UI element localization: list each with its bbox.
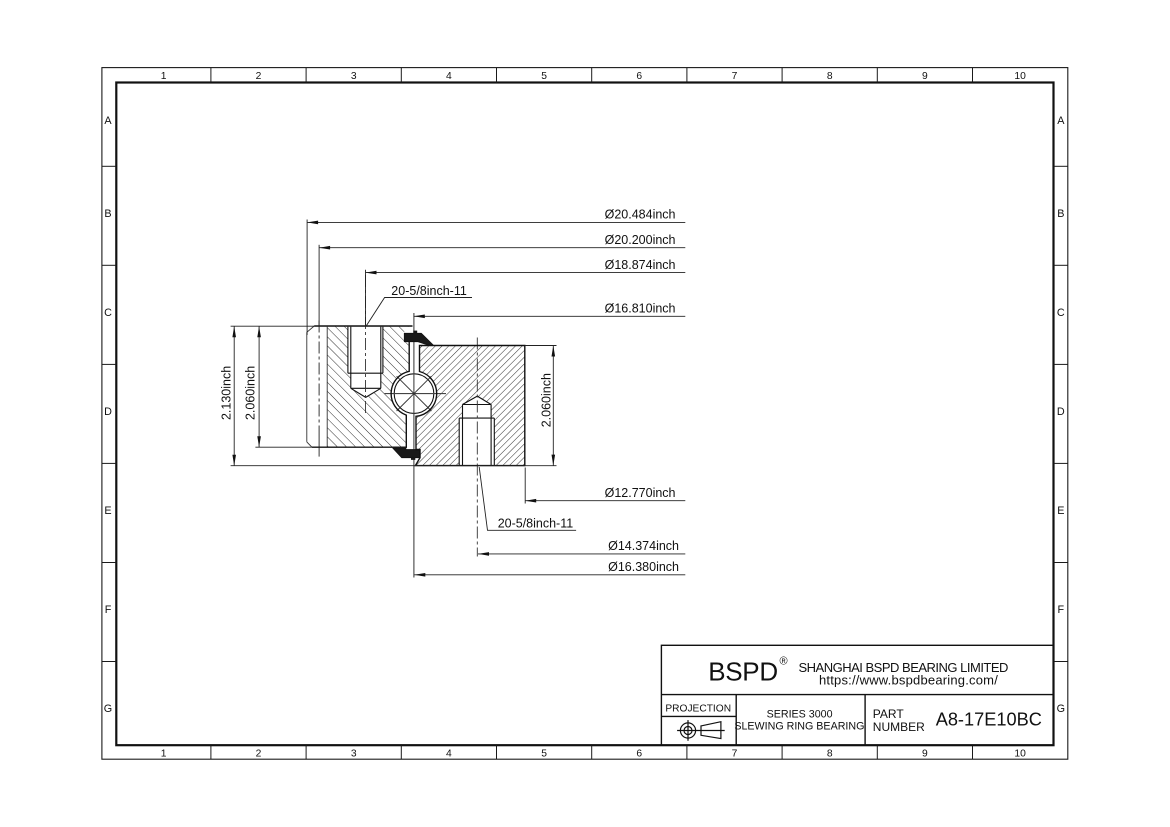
svg-text:7: 7 (732, 748, 738, 759)
svg-text:Ø16.810inch: Ø16.810inch (605, 301, 676, 315)
svg-text:Ø16.380inch: Ø16.380inch (608, 560, 679, 574)
svg-text:A: A (1057, 115, 1065, 127)
svg-text:F: F (105, 604, 112, 616)
svg-text:2.130inch: 2.130inch (220, 366, 234, 420)
svg-text:®: ® (780, 656, 788, 668)
svg-text:4: 4 (446, 748, 452, 759)
svg-text:9: 9 (922, 748, 928, 759)
svg-text:BSPD: BSPD (708, 656, 778, 686)
svg-text:Ø12.770inch: Ø12.770inch (605, 486, 676, 500)
svg-text:3: 3 (351, 71, 357, 82)
svg-text:8: 8 (827, 748, 833, 759)
svg-text:20-5/8inch-11: 20-5/8inch-11 (498, 516, 574, 530)
svg-text:NUMBER: NUMBER (873, 720, 925, 734)
svg-text:2.060inch: 2.060inch (244, 366, 258, 420)
svg-text:7: 7 (732, 71, 738, 82)
svg-text:D: D (1057, 406, 1065, 418)
svg-text:9: 9 (922, 71, 928, 82)
svg-text:10: 10 (1014, 748, 1026, 759)
svg-text:Ø20.484inch: Ø20.484inch (605, 207, 676, 221)
svg-text:https://www.bspdbearing.com/: https://www.bspdbearing.com/ (819, 672, 998, 687)
svg-text:8: 8 (827, 71, 833, 82)
svg-text:C: C (1057, 307, 1065, 319)
svg-text:B: B (104, 208, 111, 220)
svg-text:G: G (1057, 703, 1065, 715)
svg-text:5: 5 (541, 71, 547, 82)
svg-text:PART: PART (873, 707, 905, 721)
svg-text:Ø18.874inch: Ø18.874inch (605, 258, 676, 272)
svg-text:B: B (1057, 208, 1064, 220)
svg-text:SERIES 3000: SERIES 3000 (767, 709, 833, 721)
svg-text:1: 1 (161, 71, 167, 82)
svg-text:5: 5 (541, 748, 547, 759)
svg-text:D: D (104, 406, 112, 418)
svg-text:A8-17E10BC: A8-17E10BC (936, 710, 1042, 730)
svg-text:10: 10 (1014, 71, 1026, 82)
svg-text:Ø14.374inch: Ø14.374inch (608, 539, 679, 553)
svg-text:E: E (1057, 505, 1064, 517)
svg-text:C: C (104, 307, 112, 319)
svg-text:Ø20.200inch: Ø20.200inch (605, 233, 676, 247)
svg-text:6: 6 (636, 748, 642, 759)
svg-text:A: A (104, 115, 112, 127)
svg-text:PROJECTION: PROJECTION (665, 703, 731, 714)
svg-text:2: 2 (256, 71, 262, 82)
svg-text:6: 6 (636, 71, 642, 82)
svg-text:2.060inch: 2.060inch (539, 373, 553, 427)
svg-text:3: 3 (351, 748, 357, 759)
svg-text:4: 4 (446, 71, 452, 82)
svg-text:1: 1 (161, 748, 167, 759)
svg-text:E: E (104, 505, 111, 517)
svg-text:F: F (1057, 604, 1064, 616)
svg-text:SLEWING RING BEARING: SLEWING RING BEARING (734, 721, 864, 733)
svg-text:G: G (104, 703, 112, 715)
svg-text:2: 2 (256, 748, 262, 759)
svg-text:20-5/8inch-11: 20-5/8inch-11 (391, 284, 467, 298)
